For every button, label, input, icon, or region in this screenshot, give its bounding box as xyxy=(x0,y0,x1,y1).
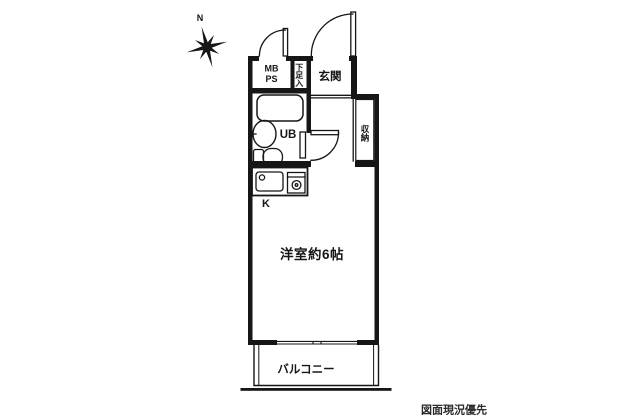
label-shoe-cabinet: 下足入 xyxy=(294,63,304,88)
disclaimer-note: 図面現況優先 xyxy=(421,403,487,417)
label-ps: PS xyxy=(265,74,277,84)
entrance-door-leaf xyxy=(351,12,356,56)
label-entrance: 玄関 xyxy=(319,69,342,83)
room-door-leaf xyxy=(311,131,339,135)
north-label: N xyxy=(197,13,204,23)
mbps-door-leaf xyxy=(283,29,287,57)
label-main-room: 洋室約6帖 xyxy=(280,246,344,262)
label-storage: 収納 xyxy=(360,124,370,143)
paper-background xyxy=(0,0,628,420)
floor-plan-page: N xyxy=(0,0,628,420)
label-kitchen: K xyxy=(262,198,270,210)
label-balcony: バルコニー xyxy=(277,363,334,376)
label-mb: MB xyxy=(265,64,279,74)
bath-door-leaf xyxy=(300,132,306,158)
label-unit-bath: UB xyxy=(280,129,297,141)
ground-line xyxy=(241,388,392,391)
floor-plan: N xyxy=(0,0,628,420)
